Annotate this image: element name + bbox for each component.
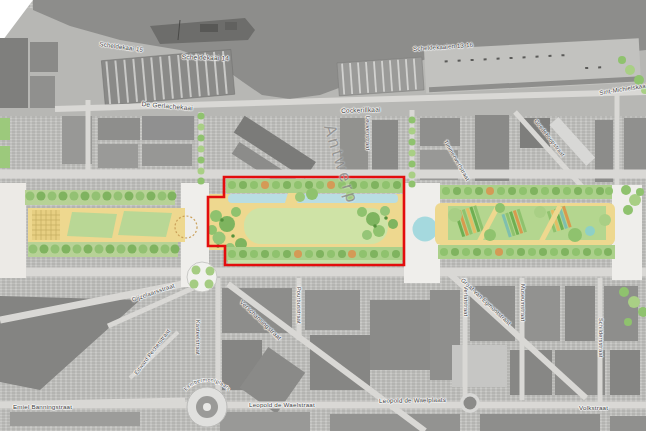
street-label-emiel-banningstraat: Emiel Banningstraat [13, 403, 72, 410]
street-label-leopold-de-waelplaats: Leopold de Waelplaats [379, 396, 446, 404]
street-label-pourbusstraat: Pourbusstraat [296, 287, 302, 324]
street-label-leuvenstraat: Leuvenstraat [365, 116, 371, 150]
roundabout-lambermontplaats [187, 387, 227, 427]
street-label-museumstraat: Museumstraat [520, 284, 526, 321]
street-label-schildersstraat: Schildersstraat [598, 318, 604, 357]
sports-courts [32, 210, 60, 240]
aerial-park-plan-map: Lambermontplaats Antwerp Scheldekaai 15 … [0, 0, 646, 431]
east-teal-feature [585, 226, 595, 236]
street-label-volkstraat: Volkstraat [579, 404, 608, 411]
street-label-verlatstraat: Verlatstraat [463, 286, 469, 316]
roundabout-leopold-de-waelplaats [460, 393, 480, 413]
warehouse-east [337, 57, 424, 96]
park-east-section [413, 185, 616, 259]
map-graphics: Lambermontplaats [0, 0, 646, 431]
street-label-cockerillkaai: Cockerillkaai [341, 106, 381, 114]
park-center-section [207, 179, 405, 266]
street-label-leopold-de-waelstraat: Leopold de Waelstraat [249, 401, 315, 408]
junction-roundabout [187, 262, 217, 292]
street-label-kasteelstraat: Kasteelstraat [195, 320, 201, 355]
pond [413, 217, 438, 242]
